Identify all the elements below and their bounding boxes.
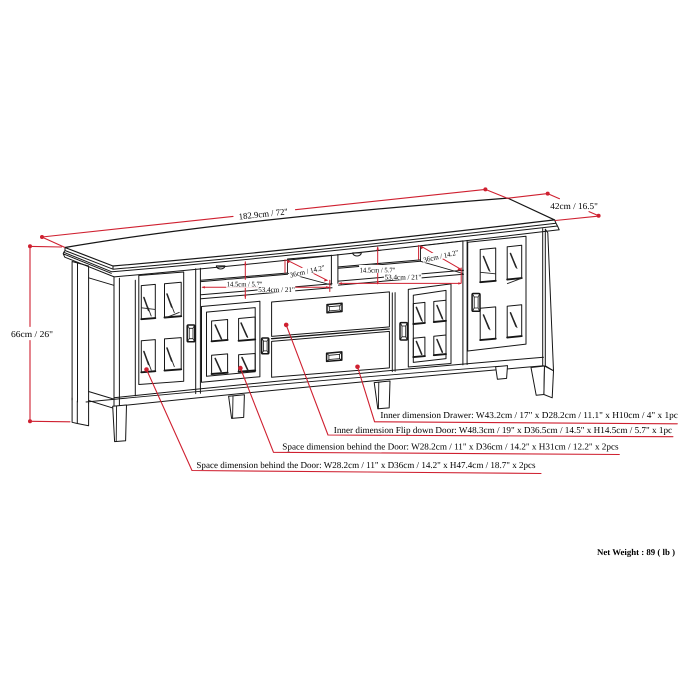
svg-text:Inner dimension Drawer: W43.2c: Inner dimension Drawer: W43.2cm / 17" x … [380, 410, 678, 420]
svg-text:Space dimension behind the Doo: Space dimension behind the Door: W28.2cm… [282, 441, 619, 451]
svg-text:53.4cm / 21": 53.4cm / 21" [258, 286, 295, 294]
svg-text:14.5cm / 5.7": 14.5cm / 5.7" [227, 281, 263, 289]
svg-text:Space dimension behind the Doo: Space dimension behind the Door: W28.2cm… [196, 460, 536, 470]
svg-text:42cm / 16.5": 42cm / 16.5" [550, 201, 598, 211]
svg-text:66cm / 26": 66cm / 26" [11, 329, 53, 339]
svg-text:53.4cm / 21": 53.4cm / 21" [385, 273, 422, 281]
svg-text:Inner dimension Flip down Door: Inner dimension Flip down Door: W48.3cm … [334, 425, 672, 435]
svg-text:36cm / 14.2": 36cm / 14.2" [423, 249, 460, 265]
svg-text:Net Weight : 89 ( lb ): Net Weight : 89 ( lb ) [597, 547, 675, 557]
